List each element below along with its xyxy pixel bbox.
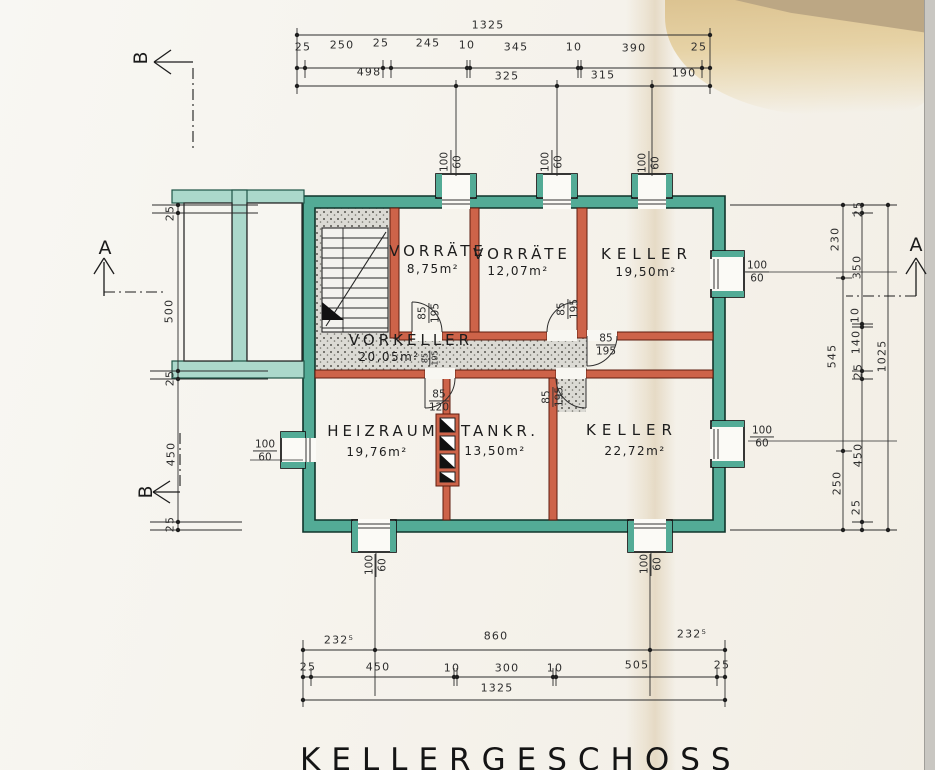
window-size-label: 10060 <box>438 150 463 174</box>
dim-label: 505 <box>625 659 650 672</box>
dim-label: 25 <box>164 370 177 386</box>
dim-label: 25 <box>164 205 177 221</box>
room-label-tankraum: TANKR. <box>461 422 539 440</box>
dim-label: 300 <box>495 662 520 675</box>
dim-label: 25 <box>850 499 863 515</box>
window-bottom-1 <box>352 519 396 552</box>
room-label-keller-bottom: KELLER <box>586 421 678 439</box>
room-label-heizraum: HEIZRAUM <box>327 422 438 440</box>
dim-label: 25 <box>852 363 865 379</box>
dim-label: 232⁵ <box>677 628 707 641</box>
room-area-heizraum: 19,76m² <box>346 445 407 459</box>
staircase <box>322 228 388 332</box>
window-size-label: 10060 <box>253 438 277 463</box>
section-marker-a-left: A <box>99 237 112 259</box>
door-size-label: 85195 <box>540 387 565 407</box>
dim-label: 230 <box>829 227 842 252</box>
room-area-tankraum: 13,50m² <box>464 444 525 458</box>
dim-label: 345 <box>504 41 529 54</box>
room-area-keller-top: 19,50m² <box>615 265 676 279</box>
left-annex <box>172 190 304 378</box>
window-size-label: 10060 <box>638 552 663 576</box>
dim-label: 498 <box>357 66 382 79</box>
dim-label: 545 <box>826 344 839 369</box>
dim-label: 250 <box>831 471 844 496</box>
dim-right-total: 1025 <box>876 340 889 373</box>
section-marker-b-top: B <box>130 51 152 64</box>
dim-label: 10 <box>566 41 582 54</box>
dim-label: 10 <box>849 307 862 323</box>
window-size-label: 10060 <box>636 151 661 175</box>
door-size-label: 85195 <box>416 303 441 323</box>
dim-label: 10 <box>459 39 475 52</box>
window-size-label: 10060 <box>363 553 388 577</box>
room-label-keller-top: KELLER <box>601 245 693 263</box>
dim-label: 450 <box>165 442 178 467</box>
dim-label: 325 <box>495 70 520 83</box>
dim-top-total: 1325 <box>472 19 505 32</box>
window-bottom-2 <box>628 519 672 552</box>
dim-label: 25 <box>714 659 730 672</box>
dim-label: 10 <box>444 662 460 675</box>
window-right-1 <box>710 251 744 297</box>
window-top-2 <box>537 174 577 209</box>
window-size-label: 10060 <box>745 259 769 284</box>
door-size-label: 85195 <box>420 350 439 365</box>
dim-label: 245 <box>416 37 441 50</box>
chimney-flues <box>440 418 455 482</box>
section-marker-a-right: A <box>910 234 923 256</box>
dim-label: 25 <box>164 516 177 532</box>
dim-label: 860 <box>484 630 509 643</box>
dim-label: 450 <box>366 661 391 674</box>
window-size-label: 10060 <box>750 424 774 449</box>
window-top-3 <box>632 174 672 209</box>
window-right-2 <box>710 421 744 467</box>
room-area-vorraete-2: 12,07m² <box>487 264 548 278</box>
dim-label: 25 <box>691 41 707 54</box>
drawing-title: KELLERGESCHOSS <box>300 742 742 770</box>
door-size-label: 85195 <box>596 332 616 357</box>
room-area-keller-bottom: 22,72m² <box>604 444 665 458</box>
dim-label: 250 <box>330 39 355 52</box>
dim-label: 190 <box>672 67 697 80</box>
dim-label: 315 <box>591 69 616 82</box>
floor-plan-linework <box>0 0 935 770</box>
room-area-vorraete-1: 8,75m² <box>407 262 459 276</box>
dim-label: 25 <box>300 661 316 674</box>
dim-bottom-total: 1325 <box>481 682 514 695</box>
dim-label: 25 <box>295 41 311 54</box>
dim-label: 140 <box>850 330 863 355</box>
door-size-label: 85195 <box>555 299 580 319</box>
room-label-vorkeller: VORKELLER <box>349 331 473 349</box>
window-top-1 <box>436 174 476 209</box>
window-size-label: 10060 <box>539 150 564 174</box>
dim-label: 390 <box>622 42 647 55</box>
dim-label: 350 <box>851 255 864 280</box>
dim-label: 232⁵ <box>324 634 354 647</box>
door-size-label-heizraum: 85120 <box>429 388 449 413</box>
dim-label: 25 <box>852 201 865 217</box>
scanned-floor-plan-page: VORRÄTE 8,75m² VORRÄTE 12,07m² KELLER 19… <box>0 0 935 770</box>
room-label-vorraete-2: VORRÄTE <box>473 245 571 263</box>
dim-label: 25 <box>373 37 389 50</box>
room-area-vorkeller: 20,05m² <box>358 350 419 364</box>
section-marker-b-bottom: B <box>135 485 157 498</box>
dim-label: 10 <box>547 662 563 675</box>
dim-label: 500 <box>163 299 176 324</box>
dim-label: 450 <box>852 443 865 468</box>
